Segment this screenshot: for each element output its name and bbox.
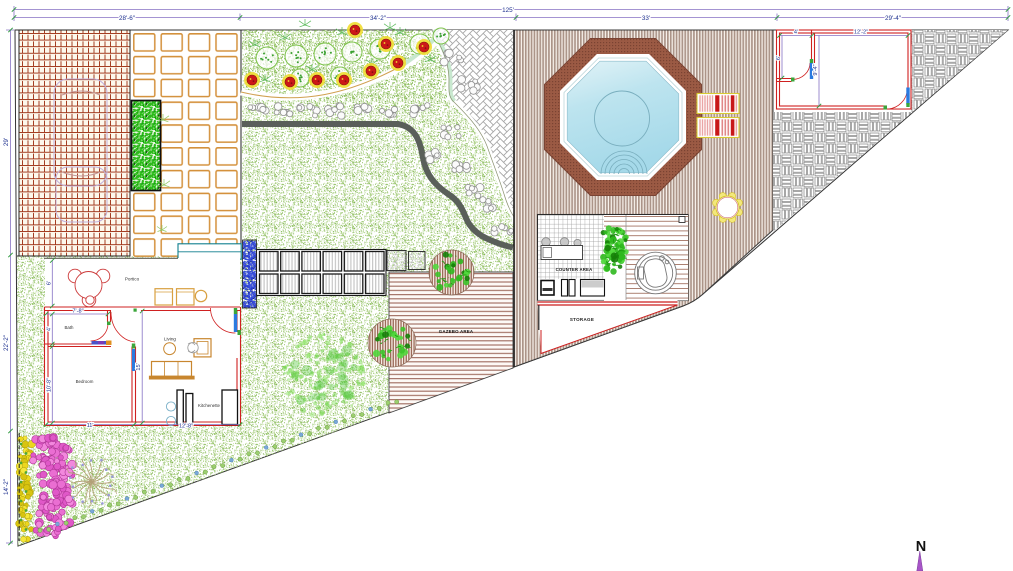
svg-text:Portico: Portico — [125, 277, 140, 282]
svg-text:28'-6": 28'-6" — [119, 15, 135, 22]
svg-text:22'-2": 22'-2" — [3, 335, 10, 351]
svg-text:Living: Living — [164, 337, 176, 342]
svg-text:6': 6' — [776, 56, 782, 60]
svg-text:COUNTER AREA: COUNTER AREA — [556, 267, 593, 272]
svg-text:29': 29' — [3, 138, 10, 146]
svg-text:7'-8": 7'-8" — [72, 309, 83, 315]
svg-text:12'-2": 12'-2" — [854, 30, 868, 36]
svg-text:14'-2": 14'-2" — [3, 479, 10, 495]
svg-text:15': 15' — [136, 363, 142, 370]
svg-text:4': 4' — [47, 327, 53, 331]
svg-text:N: N — [916, 539, 926, 555]
svg-text:Bedroom: Bedroom — [76, 379, 94, 384]
svg-text:33': 33' — [642, 15, 650, 22]
svg-text:9'-4": 9'-4" — [813, 64, 819, 75]
svg-text:29'-4": 29'-4" — [885, 15, 901, 22]
svg-text:4': 4' — [794, 30, 798, 36]
svg-text:6': 6' — [47, 281, 53, 285]
svg-text:125': 125' — [502, 7, 514, 14]
svg-text:STORAGE: STORAGE — [570, 317, 594, 322]
svg-text:GAZEBO AREA: GAZEBO AREA — [439, 329, 474, 334]
svg-text:11': 11' — [87, 423, 94, 429]
svg-text:Bath: Bath — [64, 325, 74, 330]
svg-text:12'-8": 12'-8" — [179, 424, 193, 430]
svg-text:Kitchenette: Kitchenette — [198, 403, 221, 408]
svg-text:10'-8": 10'-8" — [47, 378, 53, 392]
svg-text:34'-2": 34'-2" — [370, 15, 386, 22]
